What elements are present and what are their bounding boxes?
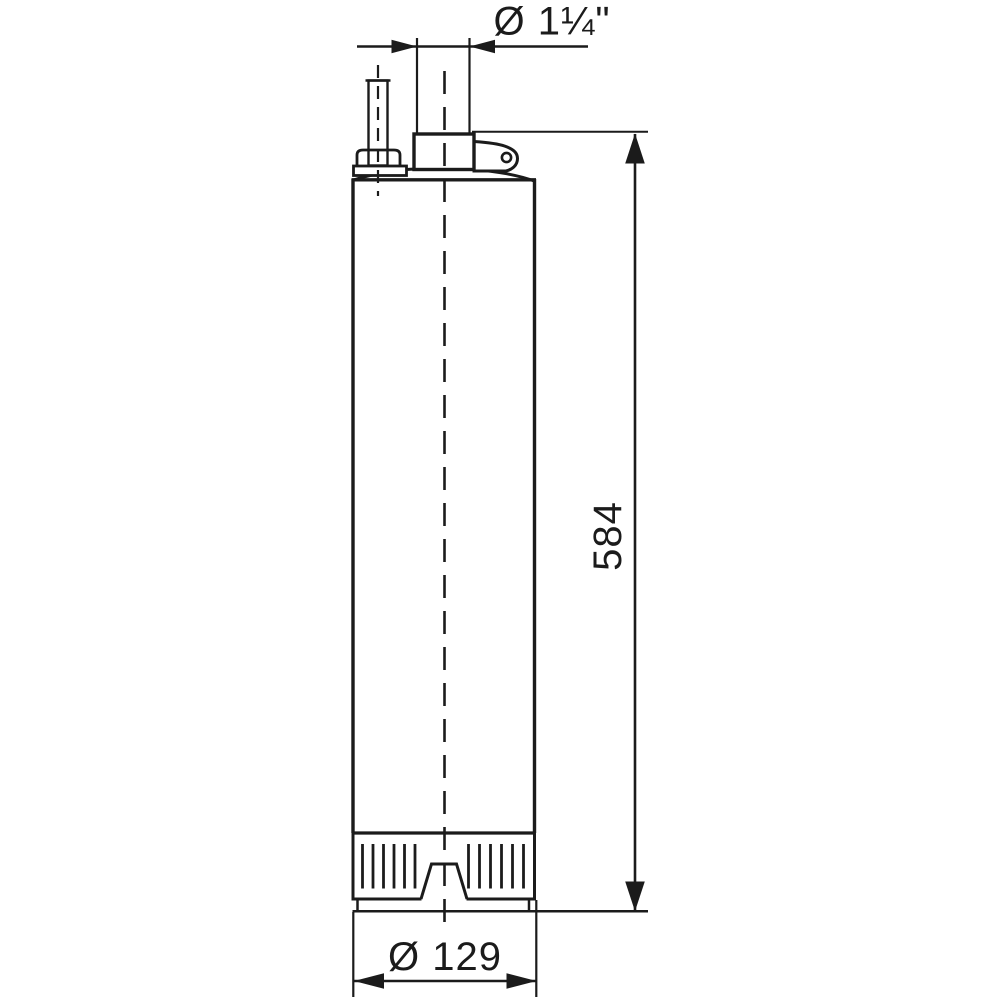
lug-hole bbox=[502, 153, 511, 162]
outlet-arrow-right-icon bbox=[470, 40, 496, 53]
overall-height-label: 584 bbox=[586, 501, 630, 571]
diameter-arrow-right-icon bbox=[507, 973, 537, 989]
pump-dimension-drawing: Ø 1¼" 584 Ø 129 bbox=[0, 0, 1000, 1000]
strainer-slots bbox=[363, 844, 524, 889]
outlet-arrow-left-icon bbox=[392, 40, 418, 53]
cable-gland-cap-band bbox=[354, 166, 407, 176]
height-arrow-up-icon bbox=[625, 134, 645, 164]
height-arrow-down-icon bbox=[625, 882, 645, 912]
body-diameter-label: Ø 129 bbox=[388, 935, 502, 979]
diameter-arrow-left-icon bbox=[354, 973, 384, 989]
outlet-diameter-label: Ø 1¼" bbox=[493, 0, 610, 44]
pump-outline-group bbox=[352, 38, 649, 930]
technical-drawing-page: Ø 1¼" 584 Ø 129 bbox=[0, 0, 1000, 1000]
